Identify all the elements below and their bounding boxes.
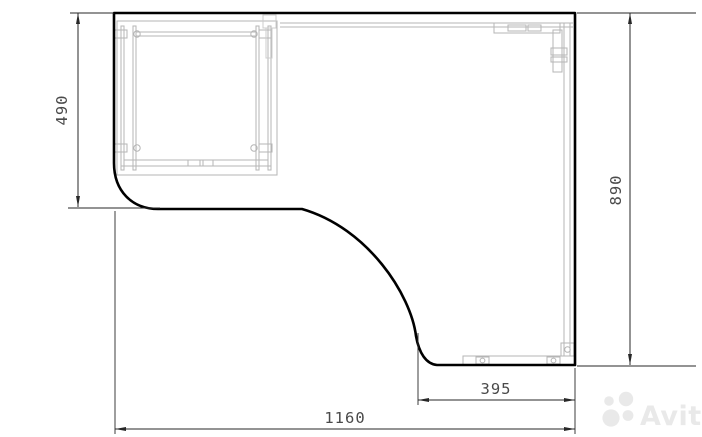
under-desk-cabinet xyxy=(114,15,277,175)
dimension-label-395: 395 xyxy=(481,380,512,398)
screw-head-icon xyxy=(551,358,556,363)
avito-watermark: Avito xyxy=(602,392,702,432)
cabinet-bottom-tab xyxy=(203,160,213,166)
corner-fitting xyxy=(561,343,574,356)
dimension-right-depth: 890 xyxy=(577,13,696,366)
logo-dot xyxy=(623,410,634,421)
bottom-right-support-rail xyxy=(463,343,575,365)
avito-logo-icon xyxy=(602,392,633,427)
cabinet-bottom-tab xyxy=(188,160,200,166)
screw-fitting-bottom-right xyxy=(251,144,272,152)
arrow-left-icon xyxy=(115,427,126,431)
desk-outline xyxy=(114,13,575,365)
cabinet-right-panel-line xyxy=(268,26,271,170)
arrow-right-icon xyxy=(564,427,575,431)
arrow-up-icon xyxy=(628,13,632,24)
watermark-text: Avito xyxy=(640,401,702,432)
corner-desk-drawing: 490 890 395 1160 Avito xyxy=(0,0,702,437)
dimension-label-1160: 1160 xyxy=(324,409,365,427)
top-edge-rail xyxy=(280,23,573,33)
screw-head-icon xyxy=(565,347,571,353)
arrow-down-icon xyxy=(628,354,632,365)
right-side-support-panel xyxy=(551,23,570,356)
corner-panel xyxy=(553,30,562,72)
arrow-down-icon xyxy=(76,196,80,207)
bracket-detail xyxy=(528,25,541,31)
mount-bracket xyxy=(494,23,560,33)
dimension-label-490: 490 xyxy=(53,95,71,126)
logo-dot xyxy=(602,409,619,426)
bracket-detail xyxy=(508,25,526,31)
dimension-total-width: 1160 xyxy=(115,211,575,434)
logo-dot xyxy=(604,396,614,406)
cabinet-outer-panel xyxy=(117,21,277,175)
dimension-label-890: 890 xyxy=(607,175,625,206)
arrow-right-icon xyxy=(564,398,575,402)
screw-fitting-top-right xyxy=(251,30,272,38)
arrow-left-icon xyxy=(418,398,429,402)
arrow-up-icon xyxy=(76,13,80,24)
dimension-return-width: 395 xyxy=(418,333,575,434)
long-side-panel xyxy=(564,23,570,356)
cabinet-left-panel-line xyxy=(121,26,124,170)
fitting-body xyxy=(259,144,272,152)
dimension-left-depth: 490 xyxy=(53,13,160,208)
screw-head-icon xyxy=(134,145,140,151)
screw-head-icon xyxy=(480,358,485,363)
technical-drawing-canvas: 490 890 395 1160 Avito xyxy=(0,0,702,437)
logo-dot xyxy=(619,392,633,406)
